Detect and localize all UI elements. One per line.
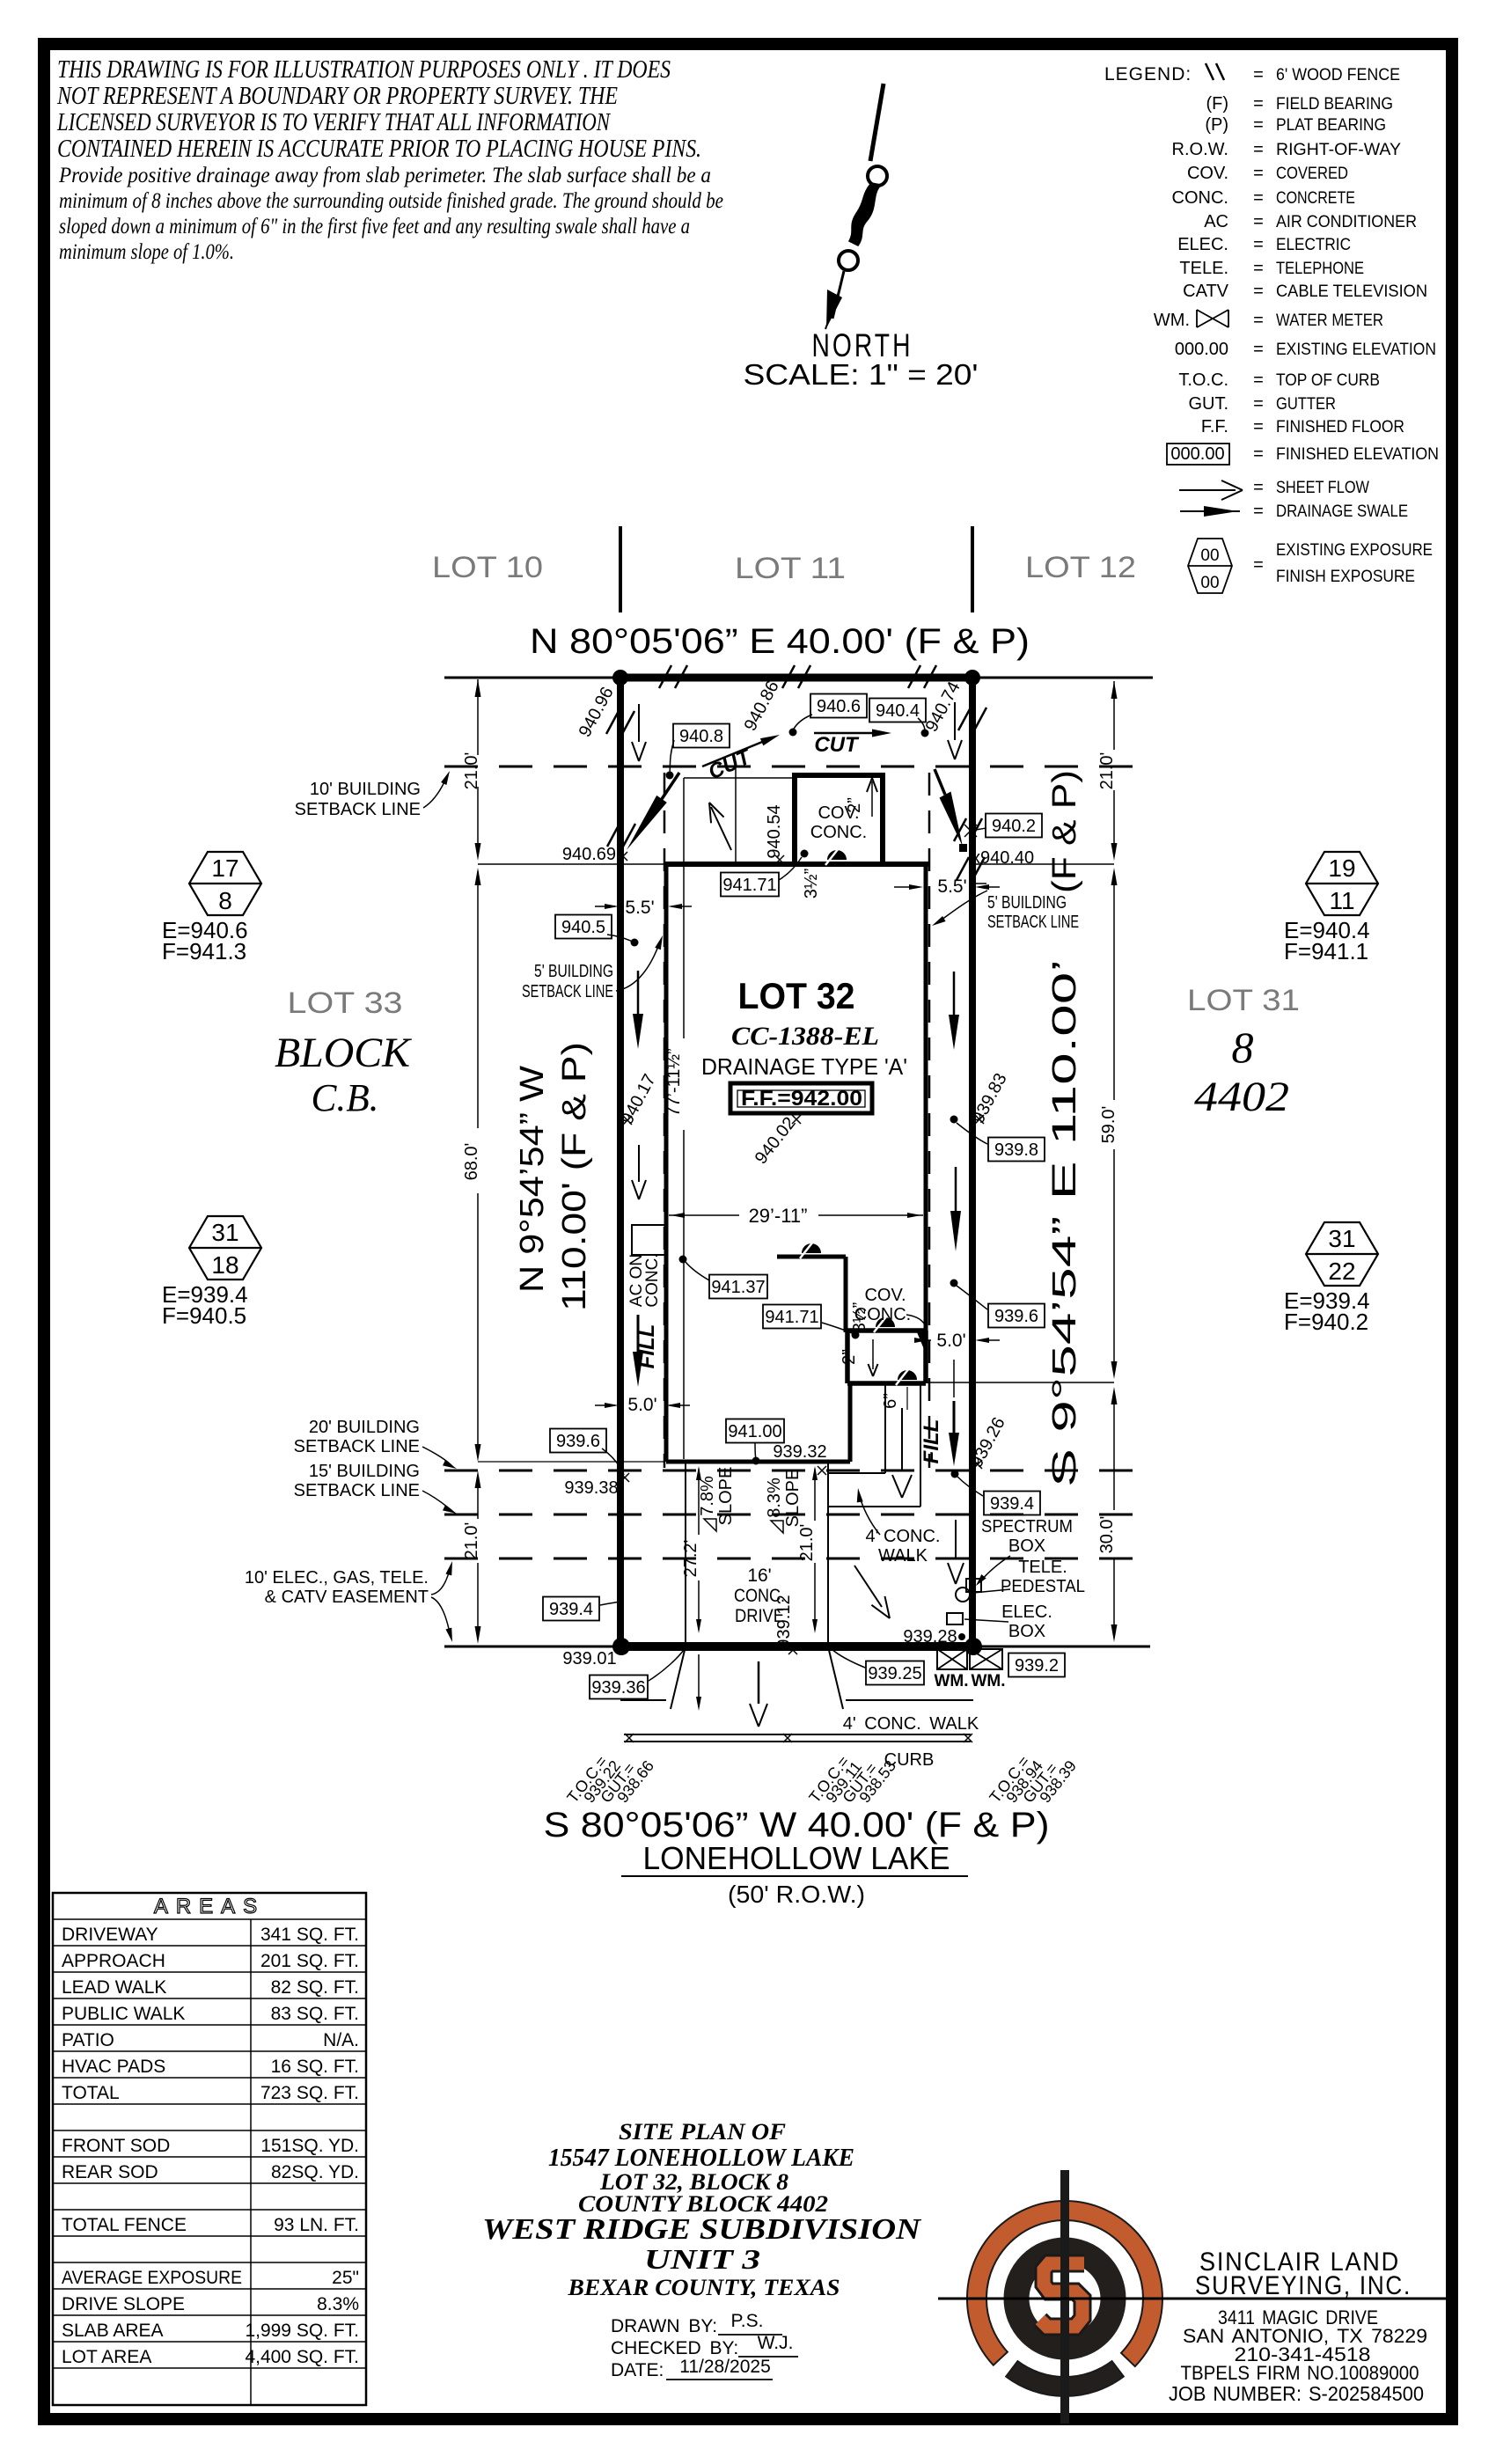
svg-text:=: = — [1253, 65, 1264, 84]
svg-text:939.8: 939.8 — [994, 1140, 1038, 1160]
svg-text:21.0': 21.0' — [462, 1522, 481, 1560]
svg-text:10' BUILDING: 10' BUILDING — [310, 780, 421, 799]
svg-text:GUT.: GUT. — [1188, 394, 1228, 414]
svg-text:5.5': 5.5' — [937, 876, 966, 897]
svg-text:77’-11½”: 77’-11½” — [664, 1048, 684, 1116]
svg-text:COV.: COV. — [864, 1286, 906, 1305]
svg-text:8.3%: 8.3% — [765, 1478, 784, 1518]
svg-text:=: = — [1253, 164, 1264, 183]
svg-text:00: 00 — [1200, 546, 1219, 565]
svg-text:=: = — [1253, 235, 1264, 254]
svg-text:S 80°05'06” W 40.00' (F & P): S 80°05'06” W 40.00' (F & P) — [544, 1806, 1050, 1844]
svg-text:TELE.: TELE. — [1018, 1558, 1067, 1577]
svg-text:COVERED: COVERED — [1276, 164, 1348, 183]
svg-text:LICENSED SURVEYOR IS TO VERIFY: LICENSED SURVEYOR IS TO VERIFY THAT ALL … — [56, 108, 611, 136]
svg-text:8: 8 — [218, 887, 232, 914]
svg-text:ELECTRIC: ELECTRIC — [1276, 235, 1351, 254]
svg-text:29’-11”: 29’-11” — [749, 1205, 808, 1227]
svg-text:940.5: 940.5 — [561, 918, 605, 937]
svg-text:P.S.: P.S. — [731, 2311, 764, 2331]
svg-text:30.0': 30.0' — [1097, 1516, 1117, 1554]
svg-text:6”: 6” — [881, 1393, 900, 1409]
svg-text:CONC.: CONC. — [810, 823, 867, 842]
svg-text:11: 11 — [1329, 887, 1354, 914]
svg-text:939.6: 939.6 — [994, 1307, 1038, 1326]
svg-text:ELEC.: ELEC. — [1001, 1602, 1052, 1622]
svg-text:LOT AREA: LOT AREA — [62, 2347, 151, 2367]
svg-text:18: 18 — [211, 1251, 238, 1279]
svg-text:31: 31 — [1328, 1225, 1355, 1252]
svg-text:16': 16' — [747, 1566, 771, 1586]
svg-text:HVAC PADS: HVAC PADS — [62, 2057, 165, 2077]
svg-text:F=941.3: F=941.3 — [162, 938, 246, 964]
svg-text:SLOPE: SLOPE — [783, 1469, 803, 1528]
svg-text:27.2': 27.2' — [681, 1540, 700, 1578]
svg-text:941.71: 941.71 — [765, 1308, 818, 1327]
svg-text:DRAWN BY:: DRAWN BY: — [611, 2316, 717, 2336]
svg-text:N/A.: N/A. — [323, 2030, 359, 2050]
svg-text:TOP OF CURB: TOP OF CURB — [1276, 370, 1380, 390]
svg-text:DRAINAGE SWALE: DRAINAGE SWALE — [1276, 502, 1408, 521]
svg-text:UNIT 3: UNIT 3 — [644, 2243, 760, 2275]
svg-text:=: = — [1253, 212, 1264, 231]
svg-text:4402: 4402 — [1194, 1074, 1289, 1120]
svg-text:5.0': 5.0' — [936, 1331, 965, 1351]
svg-text:WM.: WM. — [1154, 311, 1190, 330]
svg-text:21.0': 21.0' — [1097, 752, 1117, 790]
svg-text:4' CONC. WALK: 4' CONC. WALK — [843, 1714, 979, 1734]
svg-text:LOT 10: LOT 10 — [432, 551, 543, 584]
svg-text:5.0': 5.0' — [627, 1395, 656, 1415]
svg-text:=: = — [1253, 478, 1264, 497]
svg-text:F=940.2: F=940.2 — [1284, 1309, 1368, 1335]
svg-text:939.6: 939.6 — [556, 1432, 600, 1451]
svg-text:16 SQ. FT.: 16 SQ. FT. — [271, 2057, 359, 2077]
svg-text:sloped down a minimum of 6" in: sloped down a minimum of 6" in the first… — [59, 215, 690, 238]
svg-text:FILL: FILL — [920, 1419, 943, 1464]
svg-text:PUBLIC WALK: PUBLIC WALK — [62, 2004, 185, 2024]
svg-text:939.2: 939.2 — [1015, 1656, 1059, 1676]
svg-text:NOT REPRESENT A BOUNDARY OR PR: NOT REPRESENT A BOUNDARY OR PROPERTY SUR… — [56, 82, 618, 110]
svg-text:=: = — [1253, 394, 1264, 414]
svg-text:LEGEND:: LEGEND: — [1104, 64, 1192, 84]
svg-text:=: = — [1253, 140, 1264, 159]
svg-text:SURVEYING, INC.: SURVEYING, INC. — [1195, 2271, 1412, 2300]
svg-text:LOT 11: LOT 11 — [735, 552, 846, 585]
svg-text:APPROACH: APPROACH — [62, 1951, 165, 1971]
svg-text:1,999 SQ. FT.: 1,999 SQ. FT. — [245, 2321, 359, 2341]
svg-text:=: = — [1253, 311, 1264, 330]
svg-text:(F): (F) — [1206, 94, 1228, 114]
svg-text:PATIO: PATIO — [62, 2030, 114, 2050]
svg-text:W.J.: W.J. — [758, 2333, 794, 2353]
svg-text:=: = — [1253, 417, 1264, 436]
svg-text:PLAT BEARING: PLAT BEARING — [1276, 115, 1386, 135]
svg-text:8: 8 — [1232, 1023, 1254, 1072]
svg-text:940.69: 940.69 — [562, 845, 616, 864]
svg-text:minimum of 8 inches above the: minimum of 8 inches above the surroundin… — [59, 189, 723, 213]
svg-text:CABLE TELEVISION: CABLE TELEVISION — [1276, 282, 1427, 301]
svg-text:THIS DRAWING IS FOR ILLUSTRATI: THIS DRAWING IS FOR ILLUSTRATION PURPOSE… — [57, 55, 671, 84]
svg-text:=: = — [1253, 188, 1264, 208]
svg-text:N 80°05'06” E 40.00' (F & P): N 80°05'06” E 40.00' (F & P) — [530, 622, 1030, 661]
svg-text:=: = — [1253, 502, 1264, 521]
svg-text:F=941.1: F=941.1 — [1284, 938, 1368, 964]
svg-text:WATER METER: WATER METER — [1276, 311, 1383, 330]
svg-text:SETBACK LINE: SETBACK LINE — [295, 800, 421, 819]
svg-text:minimum slope of 1.0%.: minimum slope of 1.0%. — [59, 240, 234, 264]
svg-text:=: = — [1253, 340, 1264, 359]
svg-text:FINISHED FLOOR: FINISHED FLOOR — [1276, 417, 1404, 436]
svg-text:=: = — [1253, 115, 1264, 135]
svg-text:LEAD WALK: LEAD WALK — [62, 1977, 166, 1998]
svg-text:BLOCK: BLOCK — [275, 1030, 413, 1076]
svg-text:LOT 31: LOT 31 — [1187, 984, 1300, 1017]
svg-text:723 SQ. FT.: 723 SQ. FT. — [260, 2083, 359, 2103]
svg-text:LOT 32: LOT 32 — [738, 975, 855, 1016]
svg-text:941.37: 941.37 — [711, 1278, 765, 1297]
svg-text:25": 25" — [332, 2268, 359, 2288]
svg-text:SHEET FLOW: SHEET FLOW — [1276, 478, 1369, 497]
svg-text:SETBACK LINE: SETBACK LINE — [987, 913, 1079, 932]
svg-text:939.01: 939.01 — [562, 1649, 616, 1668]
svg-text:DRIVE SLOPE: DRIVE SLOPE — [62, 2294, 185, 2314]
svg-text:CUT: CUT — [814, 733, 860, 757]
svg-text:940.6: 940.6 — [817, 697, 861, 716]
svg-text:EXISTING ELEVATION: EXISTING ELEVATION — [1276, 340, 1436, 359]
svg-text:F=940.5: F=940.5 — [162, 1302, 246, 1329]
svg-text:11/28/2025: 11/28/2025 — [679, 2357, 771, 2377]
svg-text:F.F.: F.F. — [1201, 417, 1228, 436]
svg-text:CHECKED BY:: CHECKED BY: — [611, 2338, 738, 2358]
svg-text:TELEPHONE: TELEPHONE — [1276, 259, 1364, 278]
svg-text:=: = — [1253, 555, 1264, 575]
svg-text:21.0': 21.0' — [797, 1524, 817, 1562]
svg-text:83 SQ. FT.: 83 SQ. FT. — [271, 2004, 359, 2024]
svg-text:WM.: WM. — [971, 1672, 1005, 1690]
svg-text:SCALE: 1" = 20': SCALE: 1" = 20' — [744, 358, 979, 391]
svg-text:8.3%: 8.3% — [317, 2294, 359, 2314]
svg-text:82 SQ. FT.: 82 SQ. FT. — [271, 1977, 359, 1998]
svg-text:6' WOOD FENCE: 6' WOOD FENCE — [1276, 65, 1400, 84]
svg-text:000.00: 000.00 — [1175, 340, 1228, 359]
svg-text:940.54: 940.54 — [765, 804, 784, 858]
svg-text:DRIVE: DRIVE — [735, 1606, 784, 1626]
svg-text:=: = — [1253, 94, 1264, 114]
svg-text:2”: 2” — [845, 797, 864, 813]
svg-text:939.32: 939.32 — [773, 1442, 826, 1462]
svg-text:BOX: BOX — [1008, 1536, 1045, 1556]
svg-text:939.4: 939.4 — [990, 1494, 1034, 1514]
svg-text:21.0': 21.0' — [462, 752, 481, 790]
svg-text:FINISH EXPOSURE: FINISH EXPOSURE — [1276, 567, 1415, 586]
svg-text:AREAS: AREAS — [154, 1895, 265, 1918]
svg-text:15' BUILDING: 15' BUILDING — [309, 1462, 420, 1481]
svg-text:Provide positive drainage away: Provide positive drainage away from slab… — [58, 164, 711, 187]
svg-text:& CATV EASEMENT: & CATV EASEMENT — [265, 1588, 429, 1607]
svg-text:TBPELS FIRM NO.10089000: TBPELS FIRM NO.10089000 — [1181, 2362, 1419, 2384]
svg-text:940.8: 940.8 — [679, 727, 723, 746]
svg-text:=: = — [1253, 282, 1264, 301]
svg-text:COV.: COV. — [1187, 164, 1228, 183]
svg-text:(50' R.O.W.): (50' R.O.W.) — [728, 1881, 865, 1908]
svg-text:CONC.: CONC. — [643, 1253, 662, 1307]
svg-text:(F & P): (F & P) — [1046, 770, 1083, 893]
svg-text:CATV: CATV — [1183, 282, 1229, 301]
svg-text:PEDESTAL: PEDESTAL — [1001, 1577, 1085, 1596]
svg-text:939.38: 939.38 — [564, 1478, 618, 1498]
svg-text:ELEC.: ELEC. — [1177, 235, 1228, 254]
svg-text:BOX: BOX — [1008, 1622, 1045, 1641]
svg-text:FIELD BEARING: FIELD BEARING — [1276, 94, 1393, 114]
svg-text:940.2: 940.2 — [992, 817, 1036, 836]
svg-text:10' ELEC., GAS, TELE.: 10' ELEC., GAS, TELE. — [245, 1568, 429, 1588]
svg-text:939.36: 939.36 — [591, 1678, 645, 1698]
svg-text:939.25: 939.25 — [868, 1664, 921, 1683]
svg-text:31: 31 — [211, 1219, 238, 1246]
svg-text:2”: 2” — [840, 1349, 859, 1365]
svg-text:5' BUILDING: 5' BUILDING — [987, 893, 1067, 913]
svg-text:17: 17 — [211, 854, 238, 882]
svg-text:3½”: 3½” — [802, 869, 821, 898]
svg-text:AIR CONDITIONER: AIR CONDITIONER — [1276, 212, 1417, 231]
svg-text:SLOPE: SLOPE — [716, 1467, 736, 1526]
svg-text:CC-1388-EL: CC-1388-EL — [731, 1022, 879, 1051]
svg-text:AC: AC — [1204, 212, 1228, 231]
svg-text:LONEHOLLOW LAKE: LONEHOLLOW LAKE — [643, 1840, 950, 1876]
svg-text:5.5': 5.5' — [625, 898, 654, 918]
svg-text:WM.: WM. — [934, 1672, 968, 1690]
svg-text:941.71: 941.71 — [722, 876, 776, 895]
svg-text:S 9°54’54” E 110.00’: S 9°54’54” E 110.00’ — [1046, 959, 1083, 1487]
svg-text:SPECTRUM: SPECTRUM — [981, 1517, 1073, 1536]
svg-text:=: = — [1253, 444, 1264, 464]
svg-text:N 9°54’54” W: N 9°54’54” W — [514, 1066, 551, 1293]
svg-text:CONCRETE: CONCRETE — [1276, 188, 1355, 208]
svg-text:R.O.W.: R.O.W. — [1172, 140, 1228, 159]
svg-text:SLAB AREA: SLAB AREA — [62, 2321, 164, 2341]
svg-text:110.00' (F & P): 110.00' (F & P) — [556, 1042, 593, 1311]
svg-text:68.0': 68.0' — [462, 1143, 481, 1181]
svg-text:WALK: WALK — [878, 1546, 928, 1566]
svg-text:REAR SOD: REAR SOD — [62, 2162, 158, 2182]
svg-text:x940.40: x940.40 — [972, 848, 1034, 868]
svg-text:CONTAINED HEREIN IS ACCURATE P: CONTAINED HEREIN IS ACCURATE PRIOR TO PL… — [57, 135, 701, 163]
svg-text:RIGHT-OF-WAY: RIGHT-OF-WAY — [1276, 140, 1401, 159]
svg-text:FINISHED ELEVATION: FINISHED ELEVATION — [1276, 444, 1439, 464]
svg-text:GUTTER: GUTTER — [1276, 394, 1336, 414]
svg-text:82SQ. YD.: 82SQ. YD. — [271, 2162, 359, 2182]
svg-text:941.00: 941.00 — [728, 1422, 781, 1441]
svg-text:15547 LONEHOLLOW LAKE: 15547 LONEHOLLOW LAKE — [548, 2145, 854, 2172]
svg-text:SETBACK LINE: SETBACK LINE — [294, 1437, 420, 1456]
svg-text:939.4: 939.4 — [549, 1600, 593, 1619]
svg-text:5' BUILDING: 5' BUILDING — [534, 962, 613, 981]
svg-text:00: 00 — [1200, 574, 1219, 592]
svg-text:4,400 SQ. FT.: 4,400 SQ. FT. — [245, 2347, 359, 2367]
svg-text:000.00: 000.00 — [1170, 444, 1224, 464]
svg-text:59.0': 59.0' — [1099, 1106, 1118, 1144]
svg-text:=: = — [1253, 370, 1264, 390]
svg-text:TELE.: TELE. — [1179, 259, 1228, 278]
svg-text:FRONT SOD: FRONT SOD — [62, 2136, 170, 2156]
svg-text:(P): (P) — [1205, 115, 1228, 135]
svg-text:93 LN. FT.: 93 LN. FT. — [274, 2215, 359, 2235]
svg-text:151SQ. YD.: 151SQ. YD. — [260, 2136, 359, 2156]
svg-text:AVERAGE EXPOSURE: AVERAGE EXPOSURE — [62, 2268, 242, 2288]
svg-text:201 SQ. FT.: 201 SQ. FT. — [260, 1951, 359, 1971]
svg-text:3½”: 3½” — [850, 1302, 869, 1332]
svg-text:TOTAL FENCE: TOTAL FENCE — [62, 2215, 187, 2235]
svg-text:C.B.: C.B. — [312, 1076, 379, 1119]
svg-text:940.4: 940.4 — [876, 701, 920, 721]
svg-text:CONC.: CONC. — [1172, 188, 1228, 208]
svg-text:JOB NUMBER: S-202584500: JOB NUMBER: S-202584500 — [1169, 2382, 1424, 2405]
svg-text:7.8%: 7.8% — [698, 1476, 717, 1516]
svg-text:341 SQ. FT.: 341 SQ. FT. — [260, 1925, 359, 1945]
svg-text:LOT 33: LOT 33 — [288, 986, 403, 1020]
svg-text:SETBACK LINE: SETBACK LINE — [294, 1481, 420, 1500]
svg-text:=: = — [1253, 259, 1264, 278]
svg-text:DATE:: DATE: — [611, 2360, 664, 2380]
svg-text:SITE PLAN OF: SITE PLAN OF — [619, 2119, 786, 2145]
svg-text:20' BUILDING: 20' BUILDING — [309, 1418, 420, 1437]
svg-text:22: 22 — [1328, 1258, 1355, 1285]
svg-text:19: 19 — [1328, 854, 1355, 882]
svg-text:SETBACK LINE: SETBACK LINE — [522, 982, 613, 1001]
svg-text:CONC.: CONC. — [734, 1586, 785, 1606]
svg-text:DRIVEWAY: DRIVEWAY — [62, 1925, 158, 1945]
svg-text:WEST RIDGE SUBDIVISION: WEST RIDGE SUBDIVISION — [482, 2213, 922, 2246]
svg-text:TOTAL: TOTAL — [62, 2083, 120, 2103]
svg-text:DRAINAGE TYPE 'A': DRAINAGE TYPE 'A' — [701, 1053, 907, 1080]
svg-text:LOT 12: LOT 12 — [1025, 551, 1136, 584]
svg-text:F.F.=942.00: F.F.=942.00 — [741, 1087, 862, 1111]
svg-text:EXISTING EXPOSURE: EXISTING EXPOSURE — [1276, 540, 1433, 560]
svg-text:BEXAR COUNTY, TEXAS: BEXAR COUNTY, TEXAS — [567, 2275, 840, 2300]
svg-text:T.O.C.: T.O.C. — [1178, 370, 1228, 390]
svg-text:939.28: 939.28 — [903, 1627, 957, 1646]
